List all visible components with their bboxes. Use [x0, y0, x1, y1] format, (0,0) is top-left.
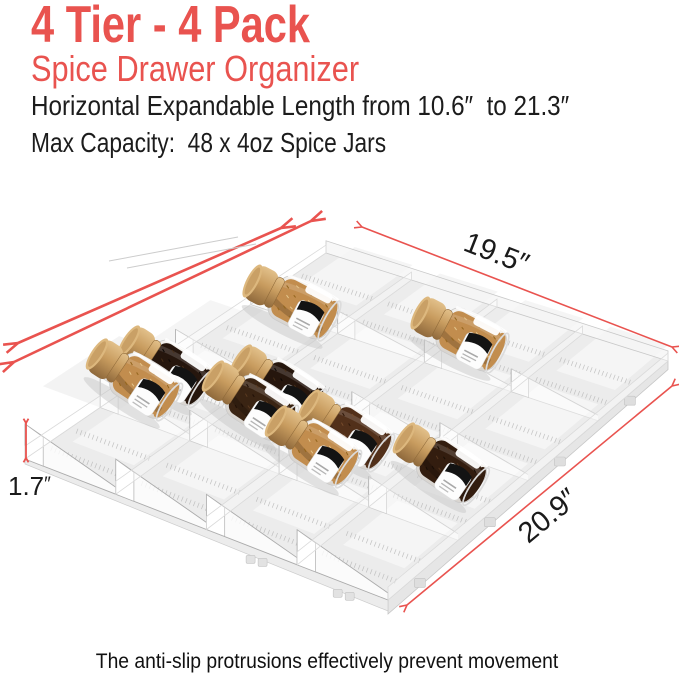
svg-text:19.5″: 19.5″	[459, 227, 533, 281]
svg-text:1.7″: 1.7″	[8, 471, 51, 501]
